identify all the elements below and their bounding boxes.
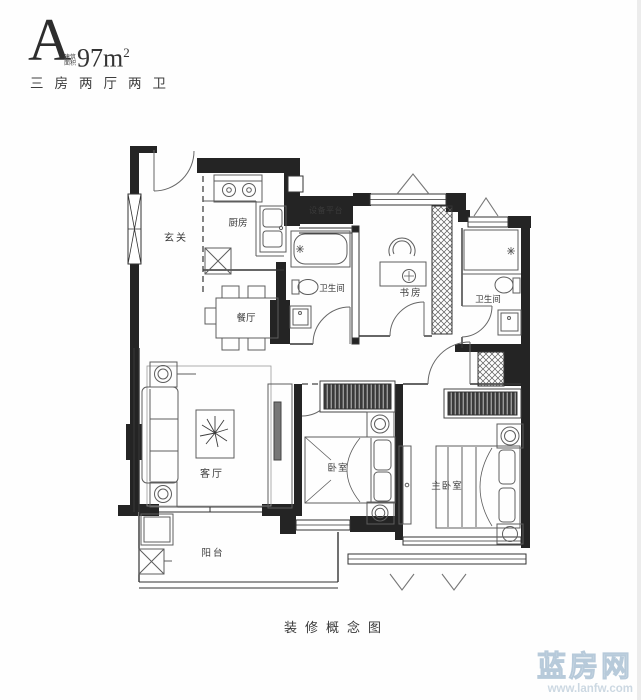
scan-edge-shade	[637, 0, 641, 700]
wardrobe	[444, 389, 521, 418]
nightstand	[497, 424, 523, 448]
bay-window-sill	[348, 554, 526, 564]
bed	[305, 437, 395, 503]
label-bath1: 卫生间	[319, 283, 345, 293]
bathtub	[291, 231, 350, 267]
window-study-top	[370, 194, 446, 205]
label-kitchen: 厨房	[228, 217, 247, 229]
label-study: 书房	[399, 287, 422, 299]
toilet	[495, 277, 520, 293]
room-bedroom	[305, 381, 395, 524]
room-bath1	[290, 231, 350, 328]
window-bedroom-bottom	[296, 520, 350, 530]
dining-chair	[248, 286, 265, 298]
toilet	[292, 280, 318, 295]
stud-wall	[352, 226, 359, 344]
door-bath2	[462, 306, 492, 337]
label-bedroom: 卧室	[327, 462, 348, 474]
window-entry-side	[128, 194, 141, 264]
wardrobe	[320, 381, 395, 412]
plant	[200, 416, 228, 447]
balcony-cabinet	[141, 514, 173, 545]
sliding-door	[159, 507, 262, 512]
nightstand	[367, 412, 394, 437]
label-bath2: 卫生间	[475, 294, 501, 304]
room-study	[380, 238, 426, 286]
window-bath2-top	[468, 217, 508, 227]
bath2-basin	[498, 310, 521, 335]
room-master	[399, 389, 523, 544]
stove	[214, 175, 262, 202]
label-dining: 餐厅	[236, 312, 256, 324]
label-master: 主卧室	[431, 480, 463, 492]
bath1-basin	[290, 306, 311, 328]
dining-chair	[205, 308, 216, 324]
door-entrance	[154, 150, 194, 191]
side-table-bottom	[150, 482, 177, 507]
site-watermark: 蓝房网 www.lanfw.com	[537, 652, 633, 696]
watermark-url: www.lanfw.com	[537, 682, 633, 696]
shower-area	[462, 230, 521, 274]
balcony-rail	[139, 582, 338, 588]
room-bath2	[462, 230, 521, 335]
watermark-brand: 蓝房网	[537, 652, 633, 682]
dining-chair	[222, 286, 239, 298]
fixture-box	[288, 176, 303, 192]
label-equipment: 设备平台	[309, 205, 343, 215]
study-desk	[380, 262, 426, 286]
floorplan-page: A 建筑面积 97m2 三房两厅两卫	[0, 0, 641, 700]
room-living	[142, 362, 292, 508]
tv-console	[268, 384, 292, 508]
washing-machine	[139, 549, 172, 574]
door-study	[390, 302, 424, 336]
plan-caption: 装修概念图	[284, 617, 389, 636]
kitchen-sink	[260, 206, 286, 252]
room-balcony	[139, 514, 173, 574]
dining-chair	[248, 338, 265, 350]
dining-chair	[222, 338, 239, 350]
label-entry: 玄关	[164, 231, 188, 244]
floorplan-drawing: 玄关 厨房 餐厅 设备平台 卫生间 书房 卫生间 客厅 卧室 主卧室 阳台	[0, 0, 641, 700]
label-balcony: 阳台	[201, 547, 224, 559]
label-living: 客厅	[200, 467, 224, 480]
study-chair	[389, 238, 415, 256]
door-bath1	[313, 307, 350, 344]
